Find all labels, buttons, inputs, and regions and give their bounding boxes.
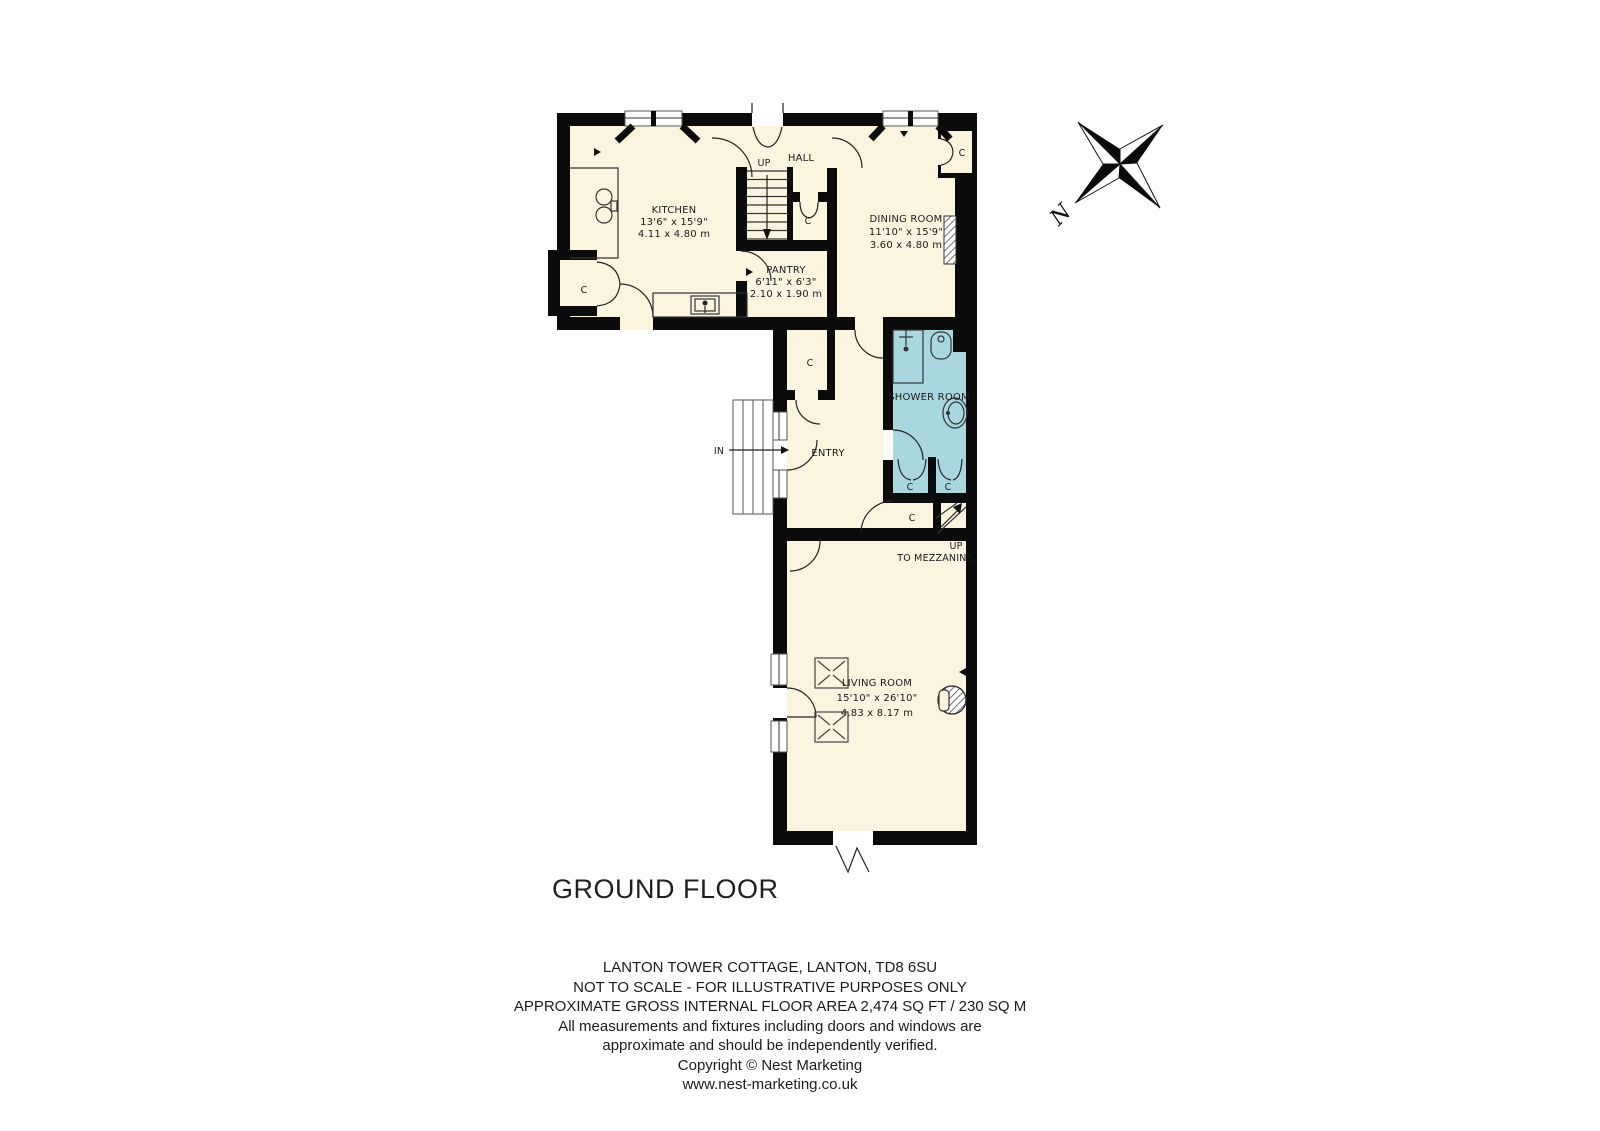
closet-label: C	[945, 482, 952, 493]
pantry-dims-imperial: 6'11" x 6'3"	[755, 277, 816, 288]
footer-website: www.nest-marketing.co.uk	[0, 1075, 1570, 1095]
footer-measurements-1: All measurements and fixtures including …	[0, 1017, 1570, 1037]
dining-label: DINING ROOM	[869, 214, 942, 225]
hall-label: HALL	[788, 153, 815, 164]
closet-label: C	[805, 216, 812, 227]
entry-label: ENTRY	[811, 448, 845, 459]
compass-north-label: N	[1045, 199, 1078, 232]
front-door-jambs	[752, 103, 783, 113]
closet-label: C	[807, 358, 814, 369]
corridor-floor	[883, 503, 966, 528]
footer-copyright: Copyright © Nest Marketing	[0, 1056, 1570, 1076]
footer-area: APPROXIMATE GROSS INTERNAL FLOOR AREA 2,…	[0, 997, 1570, 1017]
dining-fireplace	[944, 216, 956, 264]
living-french-doors	[836, 846, 869, 872]
mezzanine-up-label: UP	[949, 541, 962, 552]
kitchen-label: KITCHEN	[652, 205, 697, 216]
kitchen-closet-floor	[560, 260, 597, 306]
in-label: IN	[714, 446, 724, 457]
entry-steps	[733, 400, 773, 514]
pantry-dims-metric: 2.10 x 1.90 m	[750, 289, 822, 300]
mezzanine-label: TO MEZZANINE	[896, 553, 972, 564]
living-window-upper	[771, 654, 787, 685]
footer: LANTON TOWER COTTAGE, LANTON, TD8 6SU NO…	[0, 958, 1570, 1095]
shower-head-icon	[904, 347, 909, 352]
floorplan-page: N KITCHEN 13'6" x 15'9" 4.11 x 4.80 m HA…	[0, 0, 1600, 1131]
closet-label: C	[909, 513, 916, 524]
pantry-label: PANTRY	[766, 265, 806, 276]
living-dims-imperial: 15'10" x 26'10"	[837, 693, 918, 704]
footer-disclaimer-scale: NOT TO SCALE - FOR ILLUSTRATIVE PURPOSES…	[0, 978, 1570, 998]
living-stove	[938, 686, 966, 714]
footer-address: LANTON TOWER COTTAGE, LANTON, TD8 6SU	[0, 958, 1570, 978]
kitchen-window	[625, 111, 682, 126]
shower-room-label: SHOWER ROOM	[888, 392, 970, 403]
dining-dims-metric: 3.60 x 4.80 m	[870, 240, 942, 251]
north-compass-icon: N	[1045, 122, 1163, 231]
kitchen-dims-metric: 4.11 x 4.80 m	[638, 229, 710, 240]
stove-door-icon	[939, 690, 949, 711]
closet-label: C	[959, 148, 966, 159]
page-title: GROUND FLOOR	[552, 874, 779, 905]
dining-window	[883, 111, 938, 126]
living-label: LIVING ROOM	[842, 678, 912, 689]
stairs-up-label: UP	[757, 158, 770, 169]
kitchen-dims-imperial: 13'6" x 15'9"	[640, 217, 708, 228]
closet-label: C	[907, 482, 914, 493]
closet-label: C	[581, 285, 588, 296]
living-dims-metric: 4.83 x 8.17 m	[841, 708, 913, 719]
footer-measurements-2: approximate and should be independently …	[0, 1036, 1570, 1056]
living-window-lower	[771, 721, 787, 752]
dining-dims-imperial: 11'10" x 15'9"	[869, 227, 943, 238]
